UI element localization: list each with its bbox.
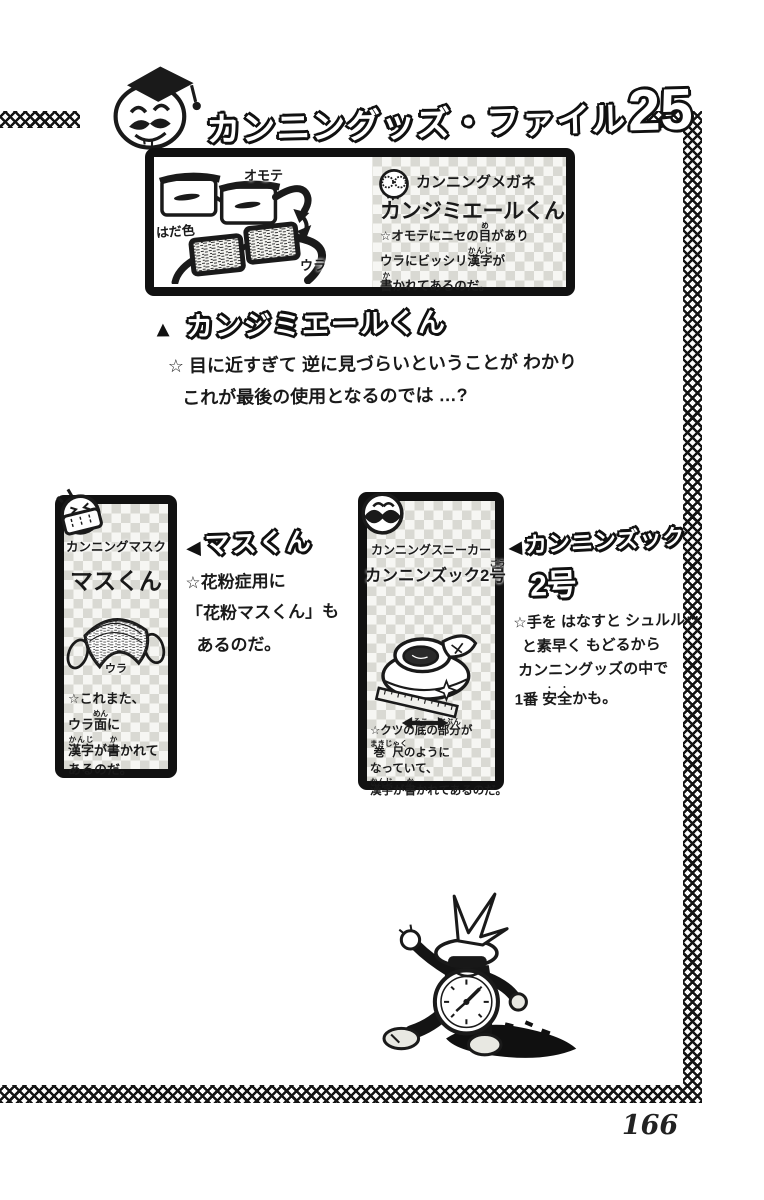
sneaker-section-comment: ☆手を はなすと シュルルッ と素早く もどるから カンニングッズの中で 1番 … (513, 608, 702, 712)
label-back: ウラ (300, 255, 326, 274)
sneaker-description-line: 漢字かんじが書かかれてあるのだ。 (370, 777, 507, 799)
border-strip-right (683, 111, 702, 1103)
comment-line: ☆ 目に近すぎて 逆に見づらいということが わかり (168, 347, 577, 383)
page-title: カンニングッズ・ファイル 25 (205, 76, 693, 156)
panel-cheating-sneaker: カンニングスニーカー カンニンズック2号ごう (358, 492, 504, 790)
panel-cheating-mask: カンニングマスク マスくん ウラ ☆これまた、 ウラ面めんに 漢字かんじが書 (55, 495, 177, 778)
comment-line: 1番 安全・・かも。 (514, 680, 701, 712)
border-strip-top-left (0, 111, 80, 128)
clock-hero-illustration (352, 888, 592, 1066)
sneaker-section-heading-text: カンニンズック (524, 524, 686, 557)
mask-product-name: マスくん (64, 562, 168, 596)
mask-description-line: あるのだ。 (68, 761, 159, 780)
comment-line: ☆手を はなすと シュルルッ (513, 608, 700, 635)
mask-description-line: ウラ面めんに (68, 709, 159, 735)
label-skin-color: はだ色 (155, 220, 195, 242)
sneaker-description: ☆クツの底そこの部分ぶぶんが 巻尺まきじゃくのように なっていて、 漢字かんじが… (370, 717, 507, 799)
sneaker-section-heading-line2: 2号 (529, 559, 577, 605)
mask-category-label: カンニングマスク (64, 536, 168, 555)
mask-description: ☆これまた、 ウラ面めんに 漢字かんじが書かかれて あるのだ。 (68, 690, 159, 779)
sneaker-description-line: ☆クツの底そこの部分ぶぶんが (370, 717, 507, 739)
mustache-face-icon (353, 485, 413, 541)
sneaker-category-label: カンニングスニーカー (367, 541, 495, 558)
comment-line: これが最後の使用となるのでは …? (182, 378, 577, 414)
glasses-description-line: ウラにビッシリ漢字かんじが (380, 246, 529, 271)
glasses-section-heading-text: カンジミエールくん (186, 307, 447, 342)
triangle-left-marker-icon: ◀ (186, 538, 203, 560)
sneaker-illustration (371, 609, 491, 713)
comment-line: ☆花粉症用に (185, 565, 339, 599)
label-front: オモテ (244, 165, 283, 184)
page-title-text: カンニングッズ・ファイル (206, 91, 627, 151)
mask-description-line: 漢字かんじが書かかれて (68, 735, 159, 761)
triangle-left-marker-icon: ◀ (508, 537, 524, 558)
glasses-section-comment: ☆ 目に近すぎて 逆に見づらいということが わかり これが最後の使用となるのでは… (168, 347, 578, 414)
panel-cheating-glasses: オモテ はだ色 ウラ カンニングメガネ カンジミエールくん ☆オモテにニセの目め… (145, 148, 575, 296)
glasses-description-line: 書かかれてあるのだ。 (380, 271, 529, 296)
comment-line: 「花粉マスくん」も (186, 596, 340, 630)
mask-section-comment: ☆花粉症用に 「花粉マスくん」も あるのだ。 (185, 565, 340, 662)
sneaker-description-line: なっていて、 (370, 761, 507, 777)
mask-section-heading: ◀マスくん (185, 522, 313, 562)
mask-section-heading-text: マスくん (204, 528, 313, 560)
mask-label-back: ウラ (64, 660, 168, 676)
glasses-category-label: カンニングメガネ (416, 171, 536, 192)
mask-description-line: ☆これまた、 (68, 690, 159, 709)
manga-page: カンニングッズ・ファイル 25 (0, 0, 764, 1200)
comment-line: カンニングッズの中で (518, 656, 701, 683)
professor-face-icon (100, 58, 204, 154)
comment-line: と素早く もどるから (522, 632, 701, 659)
border-strip-bottom (0, 1085, 702, 1103)
glasses-section-heading: ▲カンジミエールくん (152, 300, 447, 344)
page-number: 166 (600, 1110, 700, 1141)
sneaker-section-heading: ◀カンニンズック (507, 519, 686, 560)
page-title-number: 25 (627, 76, 693, 145)
sneaker-product-name: カンニンズック2号ごう (365, 559, 497, 586)
glasses-description-line: ☆オモテにニセの目めがあり (380, 221, 529, 246)
glasses-description: ☆オモテにニセの目めがあり ウラにビッシリ漢字かんじが 書かかれてあるのだ。 (380, 221, 529, 295)
comment-line: あるのだ。 (196, 628, 340, 662)
triangle-up-marker-icon: ▲ (152, 316, 176, 341)
sneaker-description-line: 巻尺まきじゃくのように (370, 739, 507, 761)
